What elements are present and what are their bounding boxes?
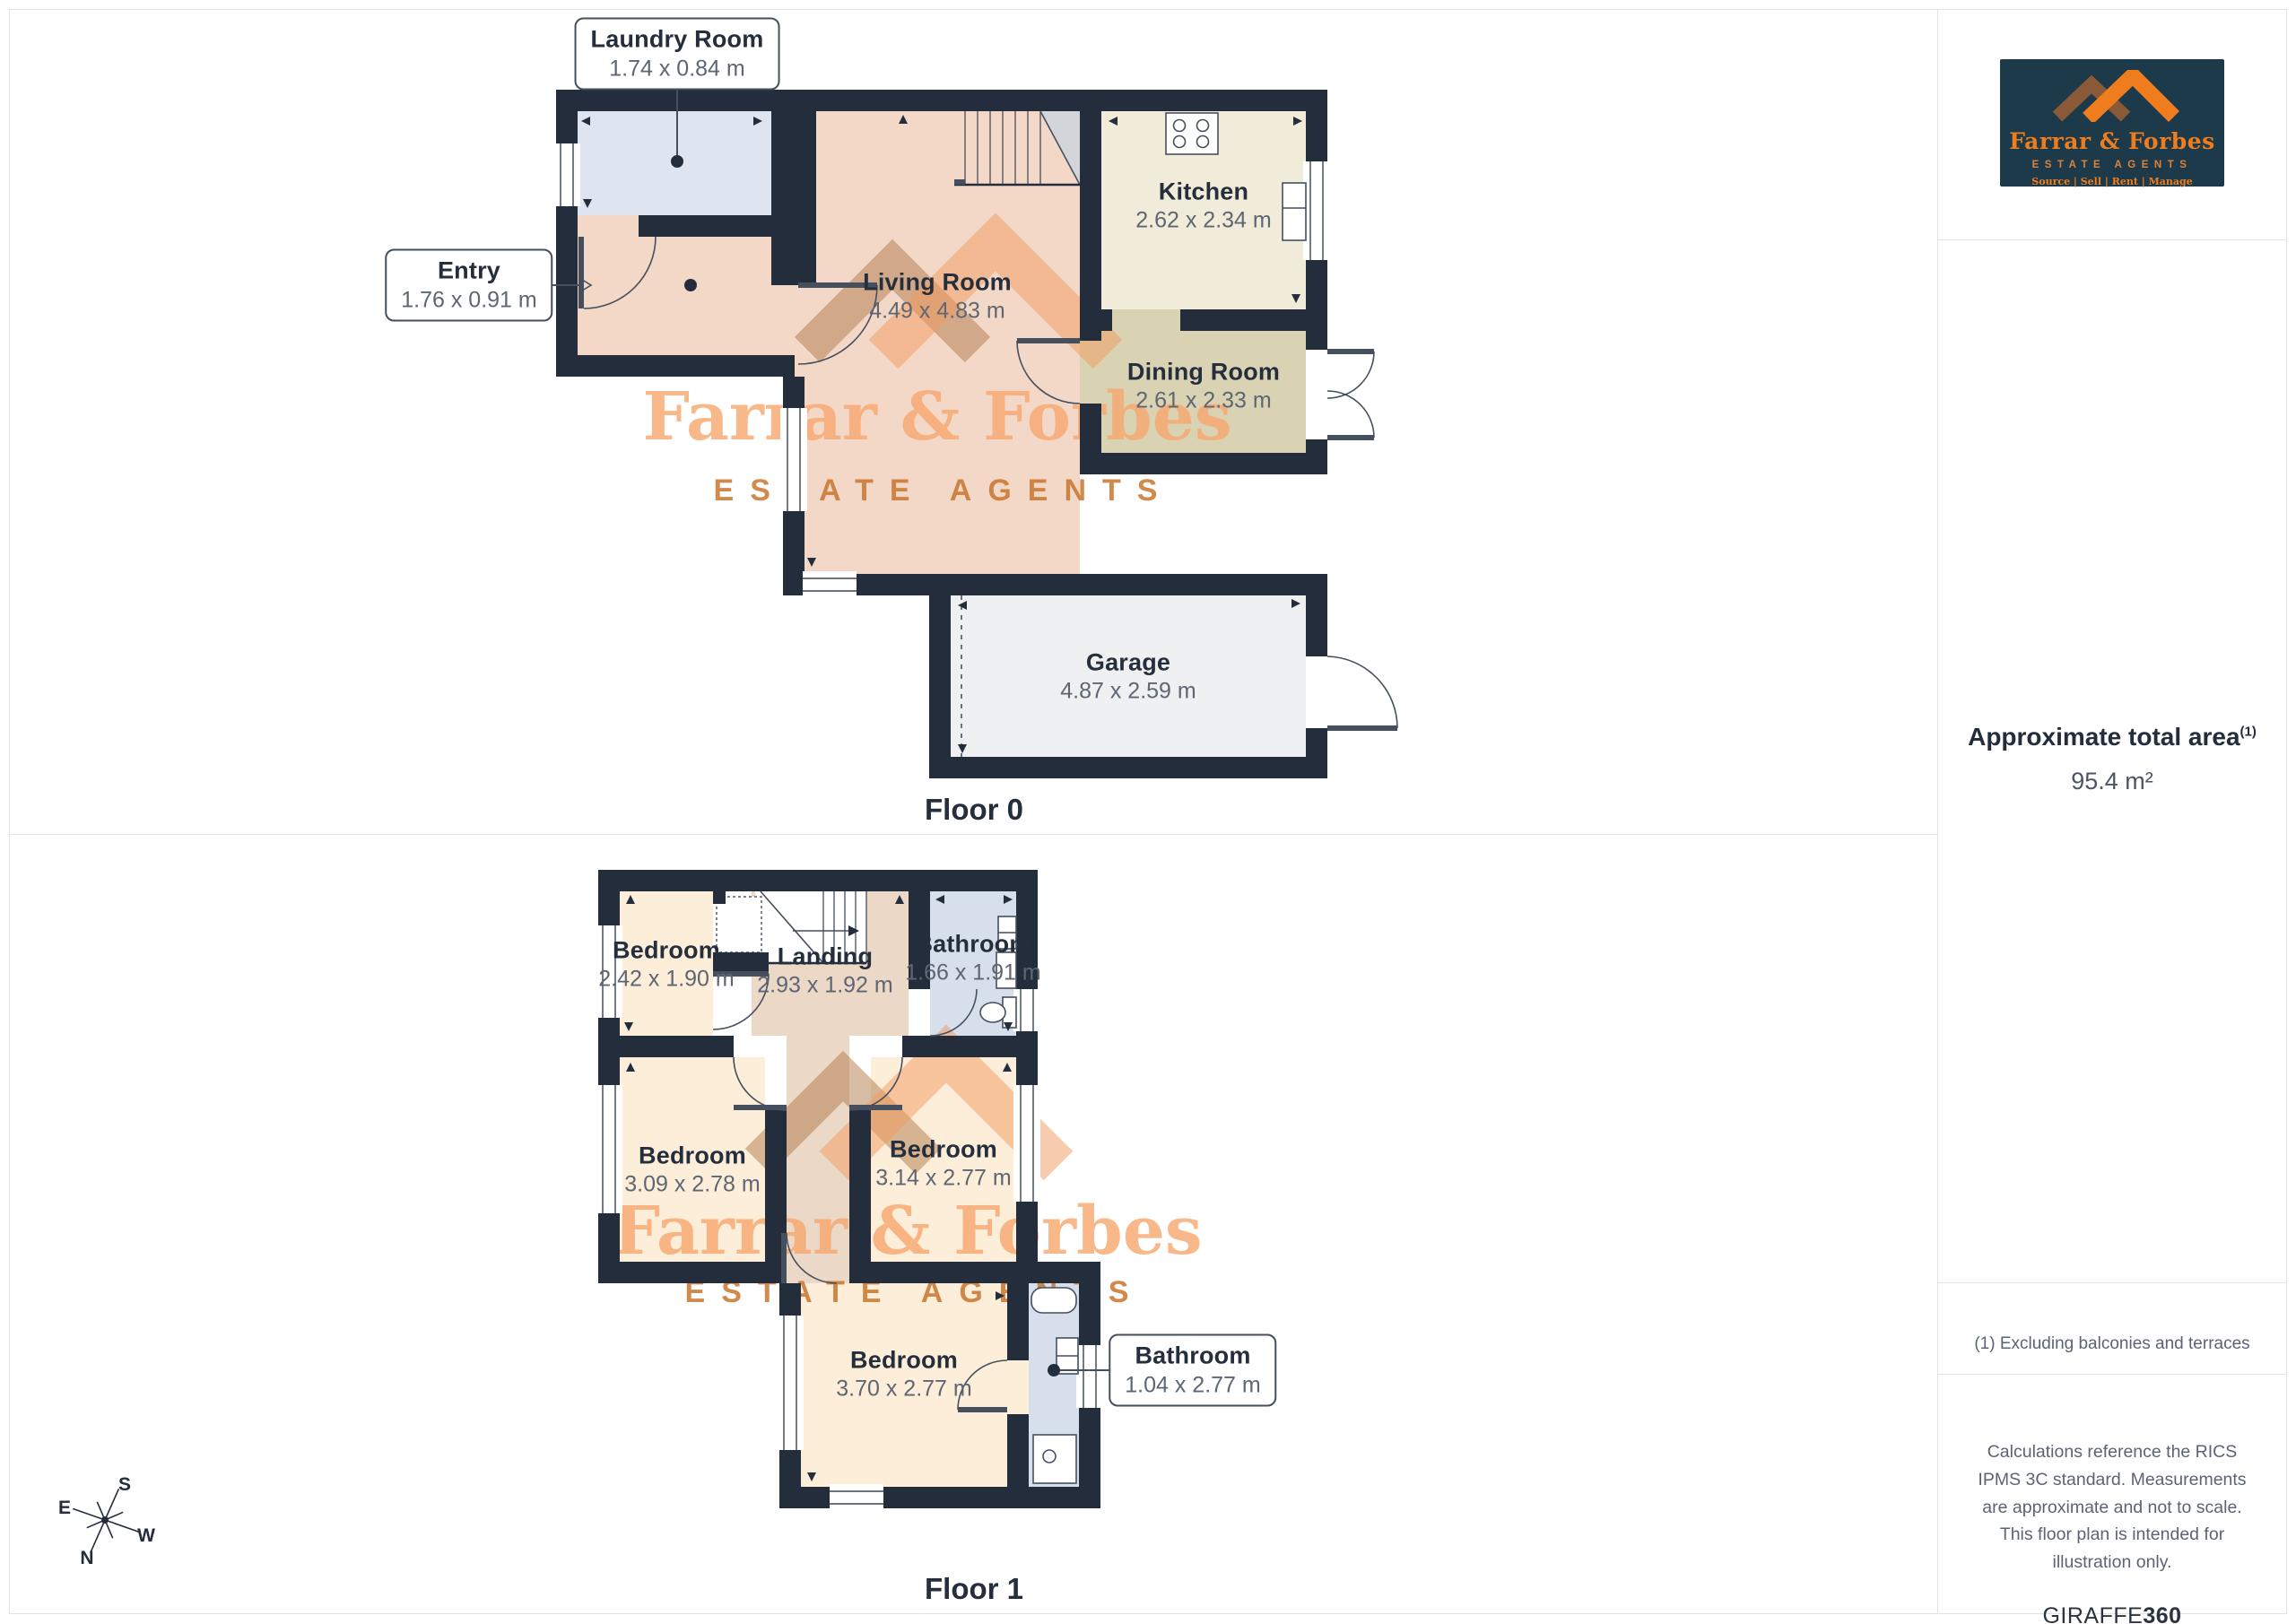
compass-east: E	[58, 1498, 71, 1518]
compass-north: N	[80, 1548, 93, 1568]
room-label-dining: Dining Room 2.61 x 2.33 m	[1127, 358, 1280, 413]
room-label-garage: Garage 4.87 x 2.59 m	[1060, 648, 1196, 703]
callout-laundry-room: Laundry Room 1.74 x 0.84 m	[575, 18, 780, 91]
sidebar: Farrar & Forbes ESTATE AGENTS Source | S…	[1937, 9, 2287, 1614]
compass-south: S	[118, 1474, 131, 1495]
logo-subtitle: ESTATE AGENTS	[2000, 160, 2224, 170]
total-area-title: Approximate total area(1)	[1937, 723, 2287, 751]
giraffe360-brand: GIRAFFE360	[1937, 1603, 2287, 1624]
room-label-landing: Landing 2.93 x 1.92 m	[757, 942, 892, 997]
total-area-block: Approximate total area(1) 95.4 m²	[1937, 723, 2287, 795]
compass-west: W	[137, 1525, 155, 1546]
room-label-bedroom-right: Bedroom 3.14 x 2.77 m	[875, 1135, 1011, 1190]
logo-name: Farrar & Forbes	[2000, 128, 2224, 154]
callout-bathroom: Bathroom 1.04 x 2.77 m	[1109, 1334, 1276, 1407]
floor0-label: Floor 0	[925, 793, 1023, 827]
disclaimer-text: Calculations reference the RICS IPMS 3C …	[1964, 1438, 2260, 1576]
room-label-bedroom-big: Bedroom 3.70 x 2.77 m	[836, 1346, 971, 1401]
watermark-name: Farrar & Forbes	[613, 1193, 1202, 1270]
agency-logo: Farrar & Forbes ESTATE AGENTS Source | S…	[2000, 59, 2224, 187]
area-footnote: (1) Excluding balconies and terraces	[1937, 1334, 2287, 1354]
roof-logo-icon	[2045, 70, 2179, 122]
room-label-living: Living Room 4.49 x 4.83 m	[863, 268, 1012, 323]
room-label-bathroom-top: Bathroom 1.66 x 1.91 m	[905, 930, 1040, 985]
stove-icon	[1166, 113, 1218, 154]
floor1-label: Floor 1	[925, 1572, 1023, 1606]
callout-entry: Entry 1.76 x 0.91 m	[385, 249, 552, 322]
total-area-value: 95.4 m²	[1937, 768, 2287, 795]
floorplan-page: Farrar & Forbes ESTATE AGENTS	[0, 0, 2296, 1624]
compass-icon: S E W N	[58, 1474, 155, 1568]
room-label-bedroom-left: Bedroom 3.09 x 2.78 m	[624, 1142, 760, 1196]
logo-tagline: Source | Sell | Rent | Manage	[2000, 176, 2224, 187]
kitchen-counter-icon	[1283, 183, 1306, 240]
room-label-bedroom-small: Bedroom 2.42 x 1.90 m	[598, 936, 734, 991]
room-label-kitchen: Kitchen 2.62 x 2.34 m	[1135, 178, 1271, 232]
